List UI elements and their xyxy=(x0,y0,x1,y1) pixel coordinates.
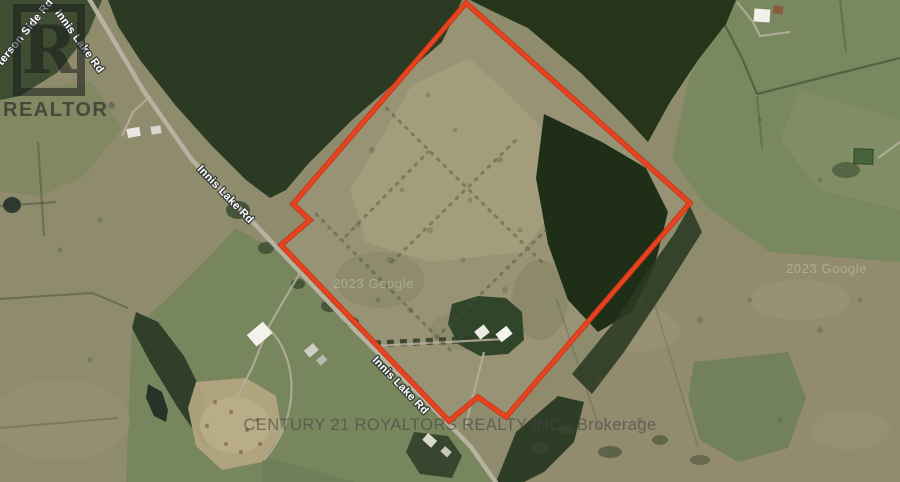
satellite-image: CENTURY 21 ROYALTORS REALTY INC., Broker… xyxy=(0,0,900,482)
green-shed xyxy=(854,149,874,165)
realtor-wordmark: REALTOR® xyxy=(3,99,115,122)
google-attribution-right: 2023 Google xyxy=(786,261,867,276)
registered-trademark-symbol: ® xyxy=(108,100,115,110)
google-attribution-left: 2023 Google xyxy=(333,276,414,291)
realtor-logo-r: R xyxy=(13,4,85,96)
realtor-wordmark-text: REALTOR xyxy=(3,99,108,121)
realtor-watermark: R REALTOR® xyxy=(13,4,115,122)
satellite-map-photo: CENTURY 21 ROYALTORS REALTY INC., Broker… xyxy=(0,0,900,482)
